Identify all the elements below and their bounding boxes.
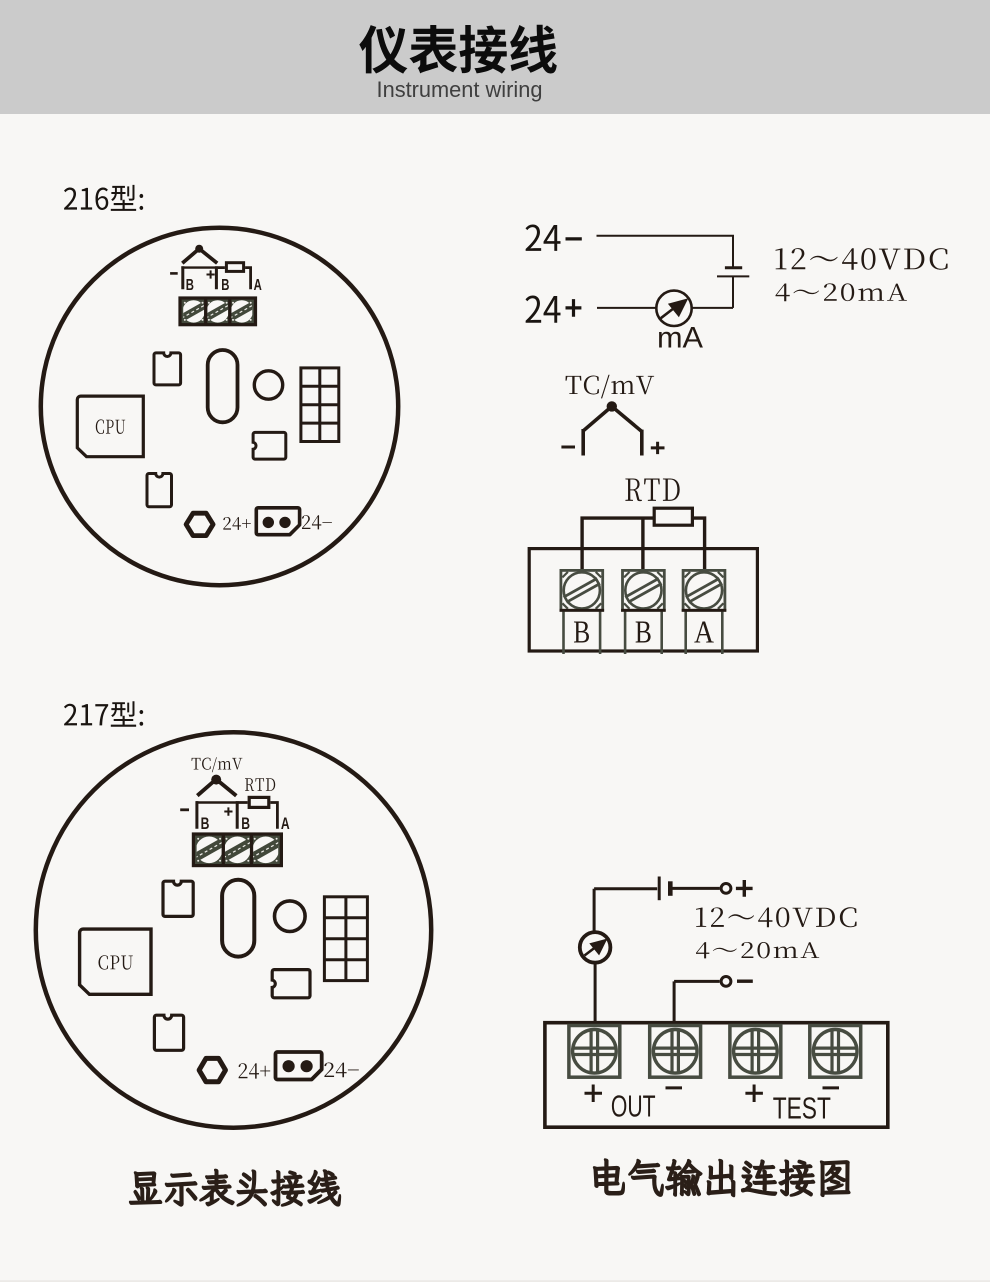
svg-text:B: B <box>635 615 652 650</box>
svg-text:A: A <box>281 814 290 833</box>
svg-text:B: B <box>221 277 229 294</box>
svg-text:OUT: OUT <box>611 1089 656 1124</box>
svg-text:A: A <box>694 615 714 650</box>
svg-text:B: B <box>201 814 210 833</box>
svg-text:Instrument wiring: Instrument wiring <box>377 77 543 102</box>
svg-text:mA: mA <box>657 322 703 355</box>
svg-text:B: B <box>186 277 194 294</box>
svg-text:TEST: TEST <box>773 1090 831 1125</box>
svg-text:B: B <box>573 615 590 650</box>
svg-text:A: A <box>254 277 263 294</box>
svg-text:B: B <box>241 814 250 833</box>
